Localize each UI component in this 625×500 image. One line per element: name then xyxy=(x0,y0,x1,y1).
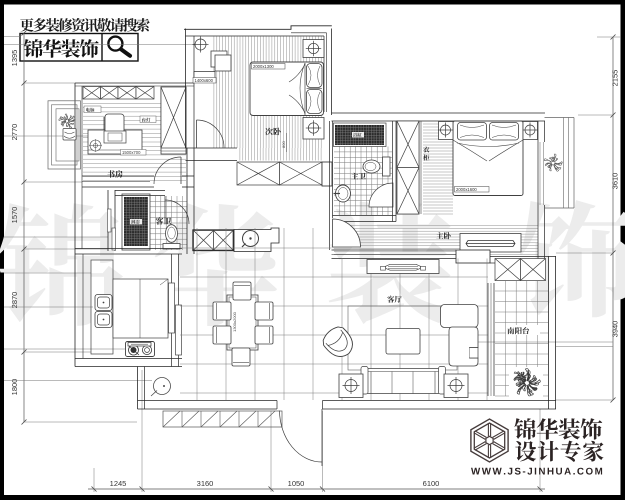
svg-text:2155: 2155 xyxy=(611,70,620,87)
svg-text:3160: 3160 xyxy=(197,479,214,488)
svg-text:2770: 2770 xyxy=(10,124,19,141)
svg-text:1050: 1050 xyxy=(288,479,305,488)
svg-text:1395: 1395 xyxy=(10,50,19,67)
svg-text:1400x600: 1400x600 xyxy=(195,78,214,83)
svg-text:800: 800 xyxy=(281,141,286,148)
svg-text:6100: 6100 xyxy=(423,479,440,488)
svg-text:1300x2000: 1300x2000 xyxy=(232,311,237,332)
svg-text:1245: 1245 xyxy=(110,479,127,488)
svg-text:1500x700: 1500x700 xyxy=(122,150,141,155)
svg-text:3610: 3610 xyxy=(611,173,620,190)
svg-text:3940: 3940 xyxy=(611,321,620,338)
svg-text:2000x1300: 2000x1300 xyxy=(253,64,274,69)
svg-text:2870: 2870 xyxy=(10,292,19,309)
svg-text:1800: 1800 xyxy=(10,379,19,396)
svg-text:2000x1600: 2000x1600 xyxy=(456,187,477,192)
svg-text:1570: 1570 xyxy=(10,207,19,224)
